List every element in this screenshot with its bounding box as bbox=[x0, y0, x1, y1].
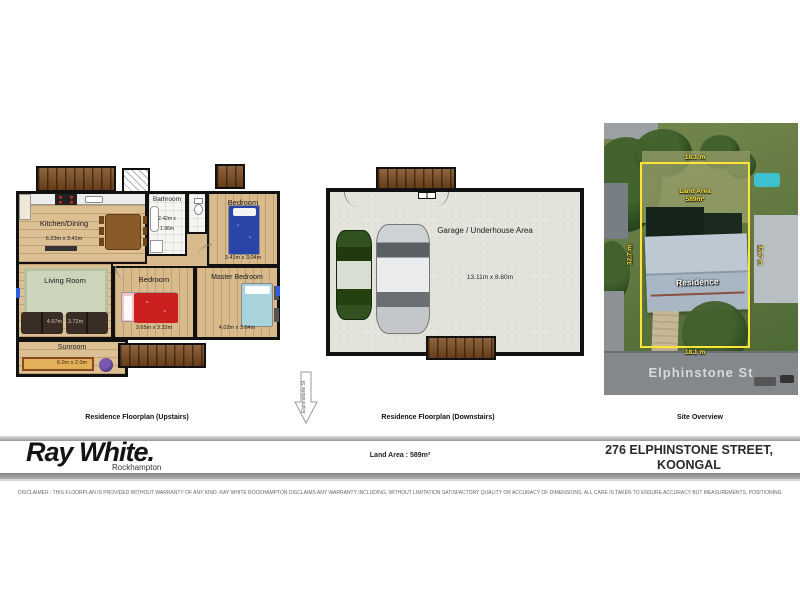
room-master: Master Bedroom 4.02m x 3.64m bbox=[195, 266, 277, 337]
kitchen-label: Kitchen/Dining bbox=[1, 219, 127, 228]
brand-wordmark: Ray White. bbox=[26, 438, 246, 466]
property-address: 276 ELPHINSTONE STREET, KOONGAL bbox=[578, 443, 800, 473]
site-boundary: 18.1 m 18.1 m 32.7 m 32.7 m Land Area 58… bbox=[640, 162, 750, 348]
door-arc bbox=[434, 192, 449, 207]
bathroom-dims-line1: 2.42m x bbox=[149, 216, 185, 222]
living-dims: 4.97m x 3.72m bbox=[19, 319, 111, 325]
room-living: Living Room 4.97m x 3.72m bbox=[19, 264, 113, 337]
brand-logo: Ray White. Rockhampton bbox=[26, 438, 246, 472]
sink-icon bbox=[85, 196, 103, 203]
pool bbox=[754, 173, 780, 187]
boundary-dim-left: 32.7 m bbox=[627, 245, 634, 265]
brand-office: Rockhampton bbox=[112, 463, 246, 472]
window-marker bbox=[16, 288, 20, 298]
bathroom-dims-line2: 1.96m bbox=[149, 226, 185, 232]
footer-land-area: Land Area : 589m² bbox=[300, 452, 500, 459]
master-bed bbox=[241, 283, 273, 327]
stairwell-hatch bbox=[122, 168, 150, 193]
pillow bbox=[124, 296, 132, 320]
neighbor-roof-left2 bbox=[604, 291, 624, 355]
caption-site: Site Overview bbox=[620, 414, 780, 421]
door-arc bbox=[344, 192, 359, 207]
street-arrow: Elphinstone St bbox=[293, 371, 319, 425]
boundary-dim-right: 32.7 m bbox=[756, 245, 763, 265]
deck-stairs-top-downstairs bbox=[376, 167, 456, 190]
room-bathroom: Bathroom 2.42m x 1.96m bbox=[147, 194, 187, 256]
step-marker bbox=[418, 192, 436, 199]
pillow bbox=[245, 286, 270, 294]
car-icon-silver bbox=[376, 224, 430, 334]
floorplan-sheet: Kitchen/Dining 6.23m x 3.41m Bathroom 2.… bbox=[0, 0, 800, 600]
deck-bottom-upstairs bbox=[118, 343, 206, 368]
footer-divider-bottom bbox=[0, 473, 800, 479]
door-arc bbox=[197, 244, 212, 259]
kitchen-dims: 6.23m x 3.41m bbox=[1, 236, 127, 242]
address-line2: KOONGAL bbox=[578, 458, 800, 473]
land-area-label-line2: 589m² bbox=[642, 196, 748, 203]
fridge-icon bbox=[19, 194, 31, 220]
deck-stairs-bottom-downstairs bbox=[426, 336, 496, 360]
bedroom1-bed bbox=[228, 205, 260, 255]
sunroom-dims: 6.0m x 2.0m bbox=[19, 360, 125, 366]
street-name-label: Elphinstone St bbox=[604, 365, 798, 380]
garage-dims: 13.11m x 8.60m bbox=[410, 274, 570, 281]
living-label: Living Room bbox=[19, 276, 111, 285]
pillow bbox=[233, 208, 256, 216]
room-bedroom1: Bedroom 3.41m x 3.04m bbox=[207, 194, 277, 266]
room-wc bbox=[187, 194, 207, 234]
bedroom1-dims: 3.41m x 3.04m bbox=[209, 255, 277, 261]
kitchen-bench bbox=[45, 246, 77, 251]
site-overview-photo: Residence Elphinstone St 18.1 m 18.1 m 3… bbox=[604, 123, 798, 395]
downstairs-floorplan: Garage / Underhouse Area 13.11m x 8.60m bbox=[326, 188, 584, 356]
caption-upstairs: Residence Floorplan (Upstairs) bbox=[37, 414, 237, 421]
land-area-label-line1: Land Area bbox=[642, 188, 748, 195]
address-line1: 276 ELPHINSTONE STREET, bbox=[578, 443, 800, 458]
room-kitchen-dining: Kitchen/Dining 6.23m x 3.41m bbox=[19, 194, 147, 264]
room-sunroom: Sunroom 6.0m x 2.0m bbox=[16, 340, 128, 377]
deck-top-small bbox=[215, 164, 245, 189]
shower-icon bbox=[150, 240, 163, 253]
boundary-dim-bottom: 18.1 m bbox=[642, 349, 748, 356]
stove-icon bbox=[55, 194, 77, 205]
master-label: Master Bedroom bbox=[197, 274, 277, 281]
upstairs-floorplan: Kitchen/Dining 6.23m x 3.41m Bathroom 2.… bbox=[16, 191, 280, 340]
bedroom2-dims: 3.65m x 3.33m bbox=[115, 325, 193, 331]
car-icon-green bbox=[336, 230, 372, 320]
road: Elphinstone St bbox=[604, 351, 798, 395]
boundary-dim-top: 18.1 m bbox=[642, 154, 748, 161]
deck-top-left bbox=[36, 166, 116, 192]
bathroom-label: Bathroom bbox=[149, 196, 185, 203]
toilet-bowl-icon bbox=[194, 204, 203, 215]
bedroom2-bed bbox=[121, 292, 177, 322]
caption-downstairs: Residence Floorplan (Downstairs) bbox=[338, 414, 538, 421]
neighbor-roof-left bbox=[604, 183, 628, 239]
street-arrow-label: Elphinstone St bbox=[301, 373, 307, 413]
window-marker bbox=[276, 286, 280, 296]
master-dims: 4.02m x 3.64m bbox=[197, 325, 277, 331]
disclaimer-text: DISCLAIMER : THIS FLOORPLAN IS PROVIDED … bbox=[18, 490, 782, 496]
sunroom-label: Sunroom bbox=[19, 344, 125, 351]
blanket bbox=[134, 293, 178, 323]
